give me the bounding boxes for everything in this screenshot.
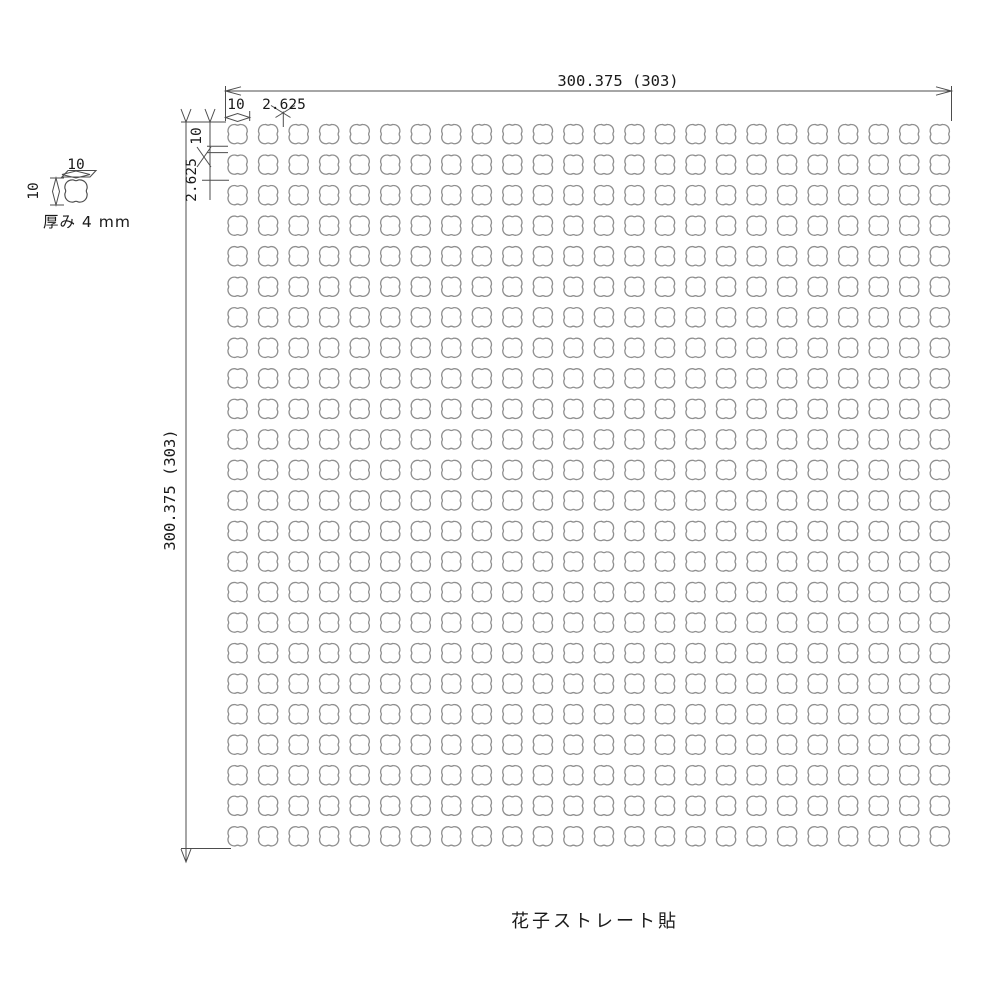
dimension-sheet-height: 300.375 (303) [161,109,231,862]
sheet-width-label: 300.375 (303) [557,72,678,90]
dimension-joint-height: 2.625 [184,147,229,202]
tile-height-label: 10 [189,127,205,144]
joint-height-label: 2.625 [184,158,200,202]
mosaic-tile-grid [228,124,950,846]
arrow-top-icon [205,109,215,122]
detail-width-label: 10 [67,157,84,173]
arrow-top-icon [181,109,191,122]
dimension-sheet-width: 300.375 (303) [226,72,952,121]
joint-width-label: 2.625 [262,97,306,113]
dimension-joint-width: 2.625 [262,97,306,127]
dim-diamond-icon [226,114,250,122]
detail-thickness-label: 厚み 4 mm [43,213,131,231]
drawing-canvas: 300.375 (303) 300.375 (303) 10 2.625 10 … [0,0,1000,1000]
tile-front-face [65,180,87,202]
tile-width-label: 10 [227,97,244,113]
sheet-height-label: 300.375 (303) [161,429,179,550]
dim-diamond-icon [53,178,60,205]
detail-height-label: 10 [26,182,42,199]
tile-detail: 10 10 厚み 4 mm [26,157,131,231]
dimension-tile-width: 10 [226,97,250,122]
tile-layout-drawing: 300.375 (303) 300.375 (303) 10 2.625 10 … [0,0,1000,1000]
drawing-caption: 花子ストレート貼 [511,911,679,932]
